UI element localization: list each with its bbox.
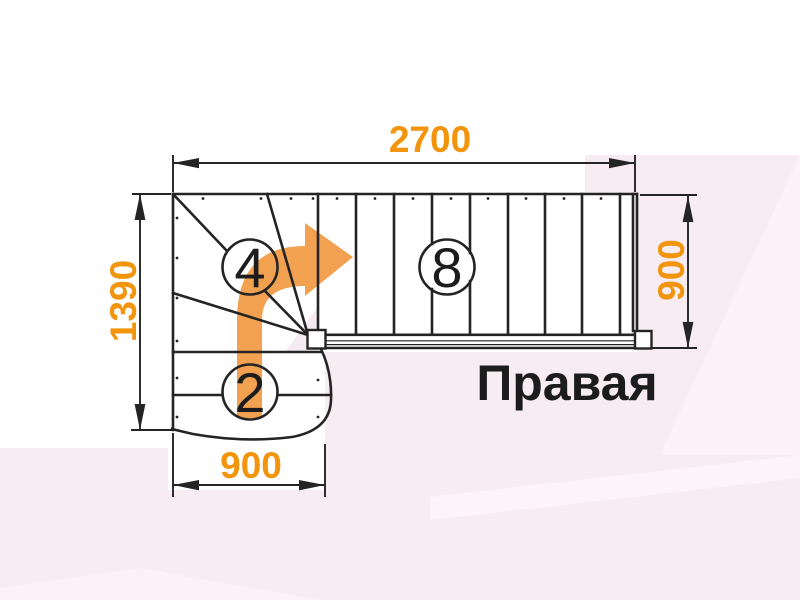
diagram-title: Правая [476,355,657,411]
stair-plan-svg: 2700 1390 900 900 4 8 2 Правая [0,0,800,600]
dim-right-label: 900 [651,239,692,301]
lower-step-count: 2 [234,361,265,424]
dim-top-label: 2700 [389,119,471,160]
dim-left-label: 1390 [103,260,144,342]
newel-post-left [308,330,326,349]
straight-step-count: 8 [431,236,462,299]
dim-bottom-label: 900 [220,445,282,486]
stair-plan-diagram: 2700 1390 900 900 4 8 2 Правая [0,0,800,600]
winder-step-count: 4 [234,236,265,299]
newel-post-right [635,331,652,349]
